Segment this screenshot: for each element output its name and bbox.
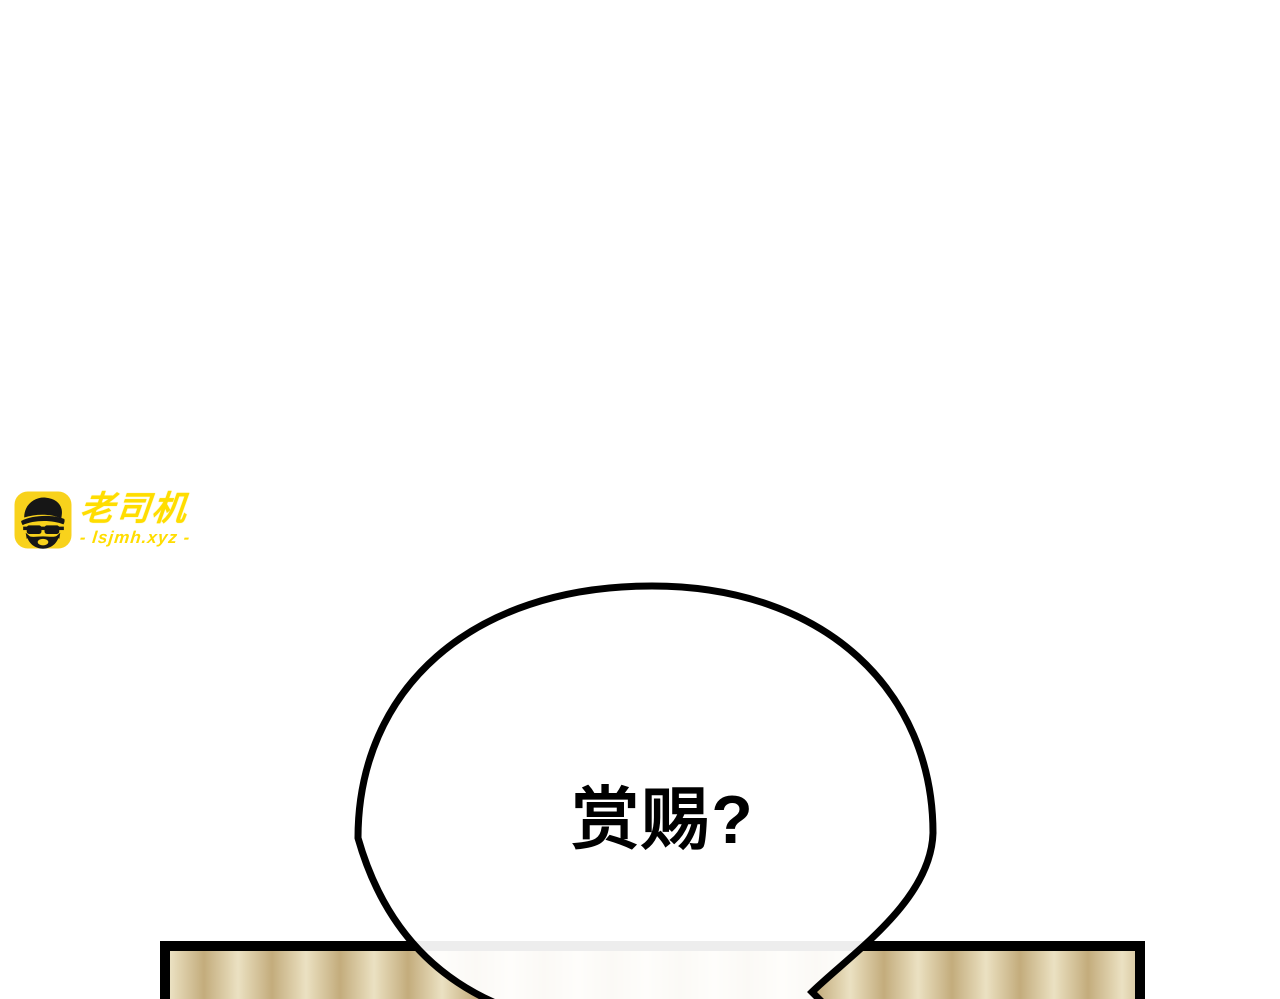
comic-page: 老司机 - lsjmh.xyz - 赏赐?	[0, 0, 1280, 999]
comic-scene: 赏赐?	[0, 0, 1280, 999]
speech-bubble-text: 赏赐?	[571, 782, 755, 858]
